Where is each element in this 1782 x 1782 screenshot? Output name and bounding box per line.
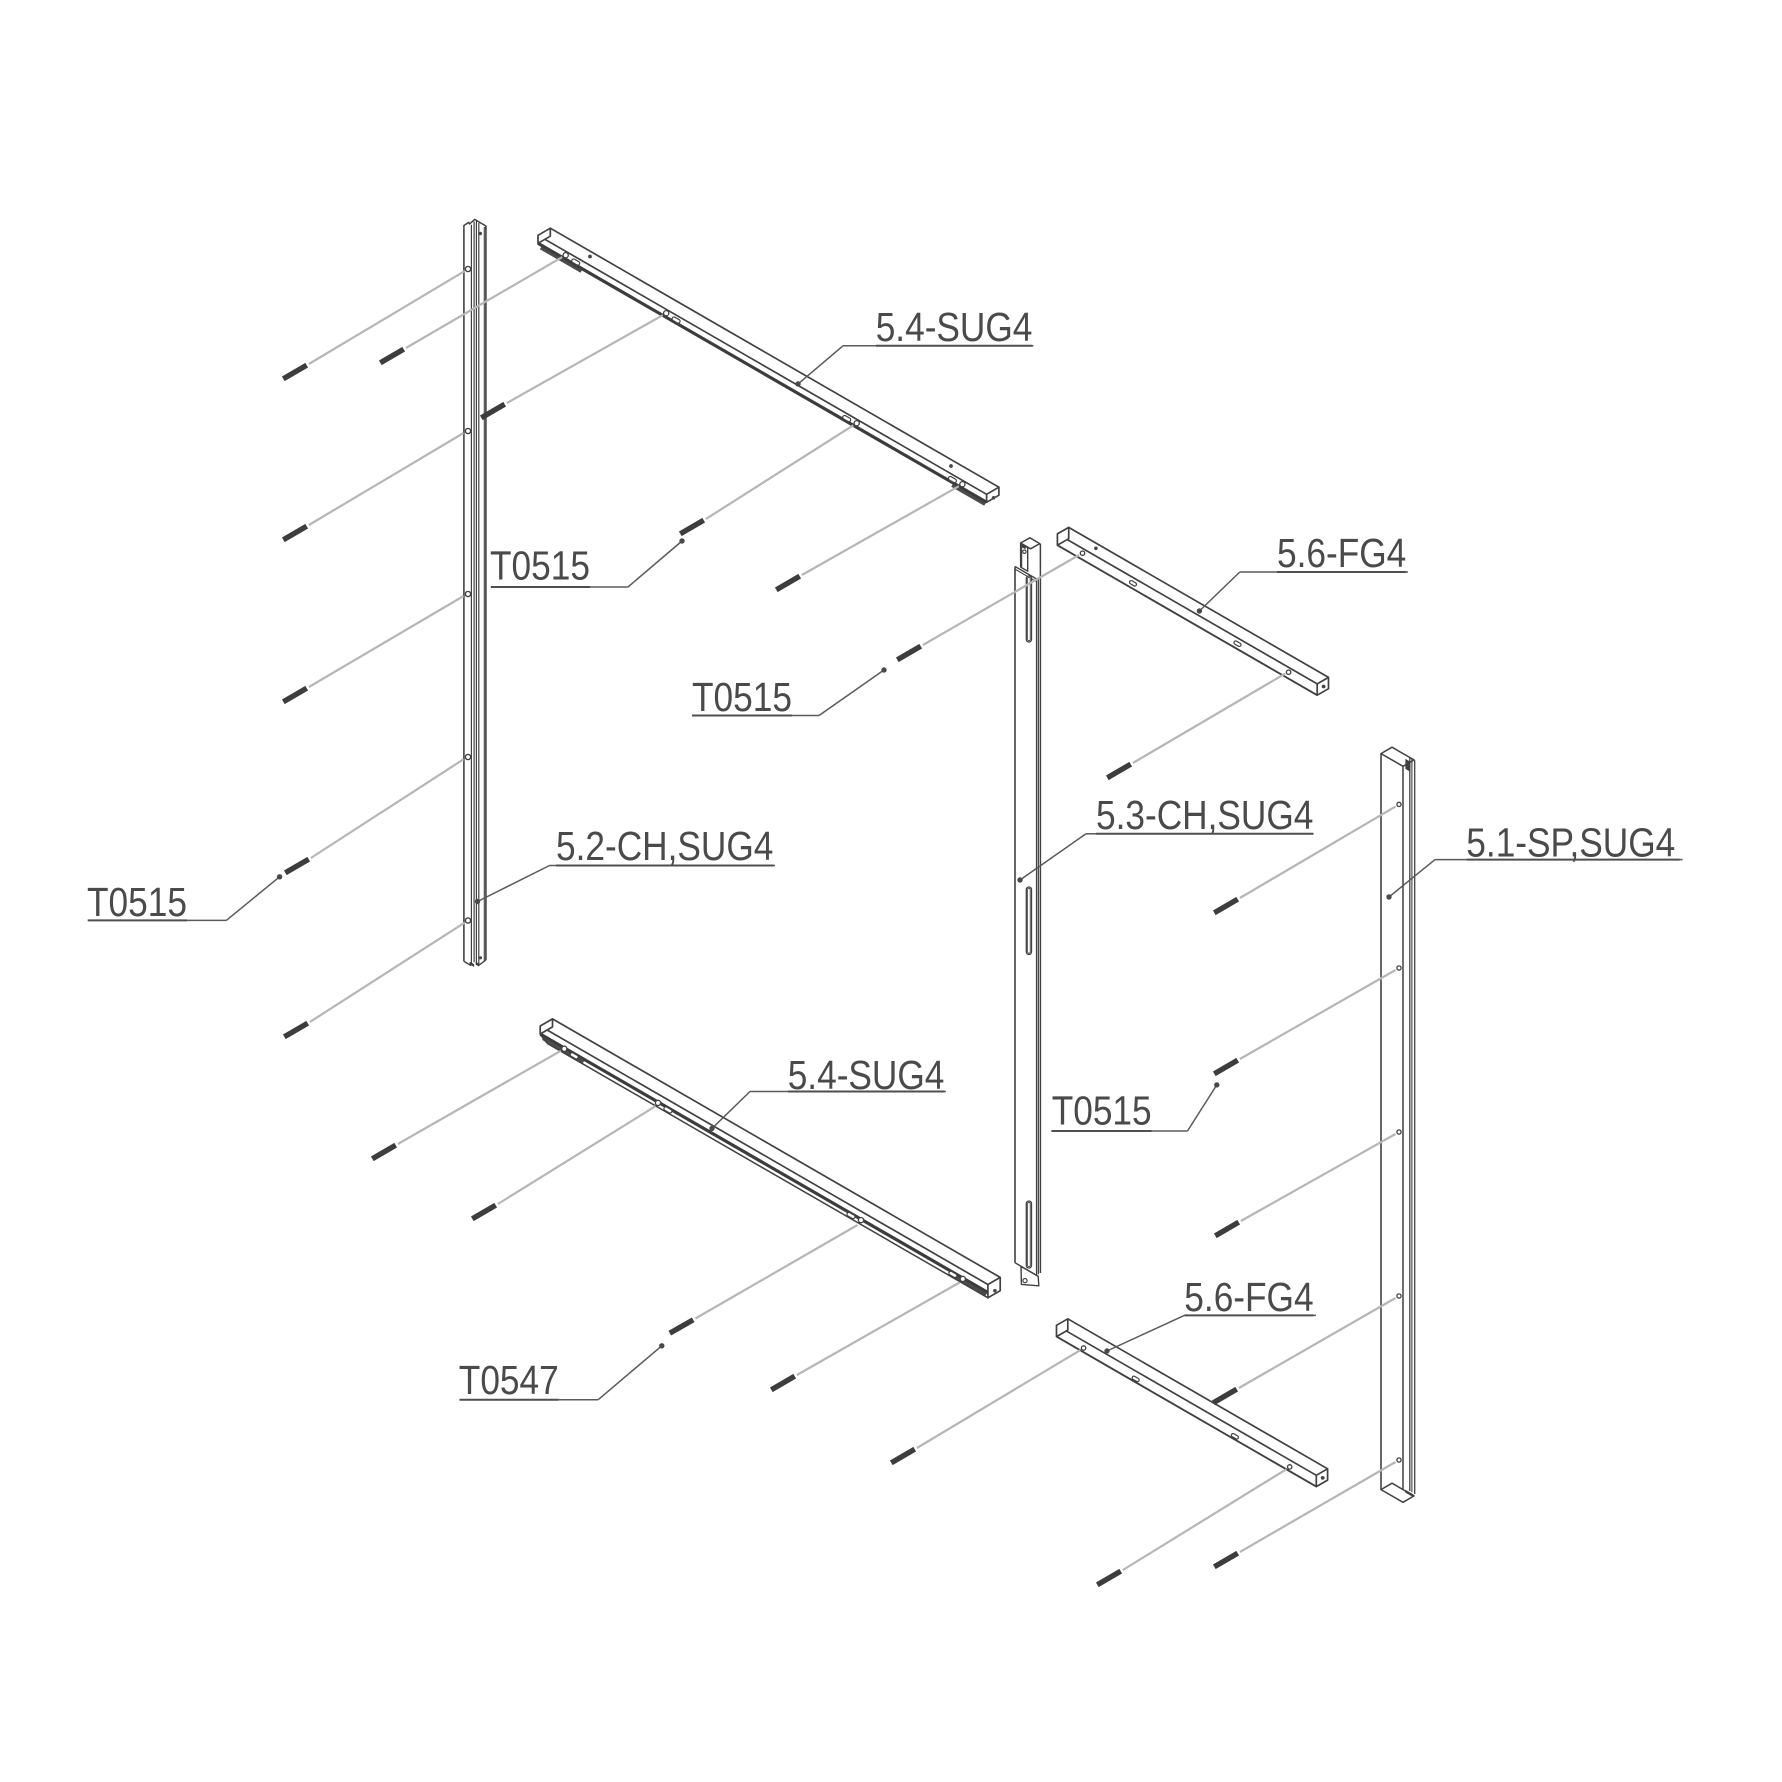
svg-text:T0515: T0515 <box>692 675 792 721</box>
svg-text:5.2-CH,SUG4: 5.2-CH,SUG4 <box>556 824 773 870</box>
svg-text:T0547: T0547 <box>459 1358 559 1404</box>
svg-text:5.6-FG4: 5.6-FG4 <box>1184 1275 1313 1321</box>
svg-text:5.3-CH,SUG4: 5.3-CH,SUG4 <box>1096 793 1313 839</box>
svg-text:T0515: T0515 <box>87 880 187 926</box>
svg-text:T0515: T0515 <box>490 543 590 589</box>
svg-text:5.6-FG4: 5.6-FG4 <box>1277 531 1406 577</box>
svg-text:T0515: T0515 <box>1052 1088 1152 1134</box>
svg-text:5.4-SUG4: 5.4-SUG4 <box>876 305 1033 351</box>
